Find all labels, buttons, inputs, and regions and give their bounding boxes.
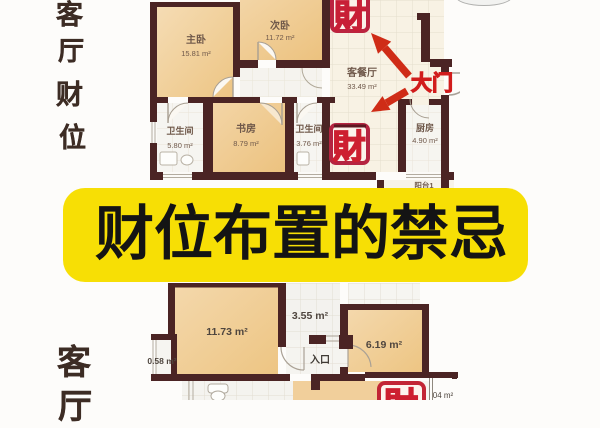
- svg-text:15.81 m²: 15.81 m²: [181, 49, 211, 58]
- svg-text:11.72 m²: 11.72 m²: [265, 33, 295, 42]
- svg-text:11.73 m²: 11.73 m²: [206, 326, 248, 338]
- svg-text:33.49 m²: 33.49 m²: [347, 82, 377, 91]
- svg-text:卫生间: 卫生间: [166, 125, 193, 136]
- svg-text:客餐厅: 客餐厅: [346, 66, 377, 79]
- svg-text:厨房: 厨房: [416, 122, 434, 133]
- svg-text:3.76 m²: 3.76 m²: [296, 139, 322, 148]
- svg-text:04 m²: 04 m²: [433, 391, 454, 400]
- svg-text:財: 財: [384, 387, 418, 400]
- svg-text:0.58 m²: 0.58 m²: [147, 356, 176, 366]
- svg-text:4.90 m²: 4.90 m²: [412, 136, 438, 145]
- svg-text:8.79 m²: 8.79 m²: [233, 139, 259, 148]
- svg-text:书房: 书房: [236, 122, 256, 135]
- svg-text:次卧: 次卧: [270, 19, 290, 32]
- svg-text:5.80 m²: 5.80 m²: [167, 141, 193, 150]
- svg-text:主卧: 主卧: [186, 33, 206, 46]
- svg-text:財: 財: [333, 129, 366, 166]
- svg-text:6.19 m²: 6.19 m²: [366, 339, 403, 351]
- svg-text:財: 財: [334, 0, 366, 34]
- svg-text:卫生间: 卫生间: [295, 123, 322, 134]
- svg-text:入口: 入口: [310, 354, 330, 366]
- svg-text:大门: 大门: [411, 71, 453, 95]
- svg-text:3.55 m²: 3.55 m²: [292, 310, 329, 322]
